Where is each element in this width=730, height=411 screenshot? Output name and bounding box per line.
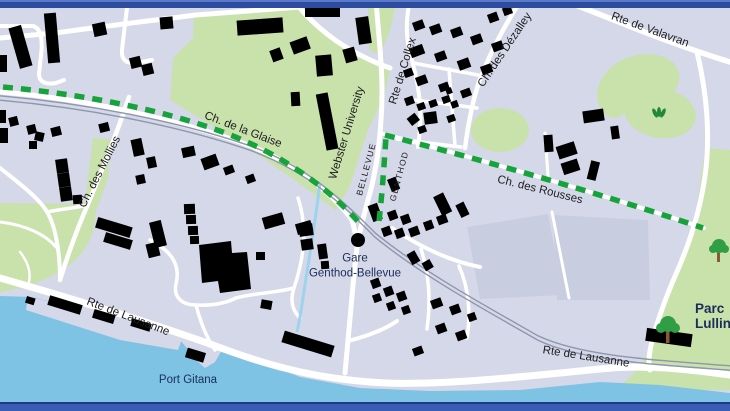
top-border-bar bbox=[0, 0, 730, 8]
bottom-border-bar bbox=[0, 402, 730, 411]
map-graphic bbox=[0, 0, 730, 411]
map-canvas[interactable]: Ch. de la Glaise Ch. des Mollies Webster… bbox=[0, 0, 730, 411]
sports-fields bbox=[467, 214, 650, 300]
station-marker bbox=[351, 233, 365, 247]
